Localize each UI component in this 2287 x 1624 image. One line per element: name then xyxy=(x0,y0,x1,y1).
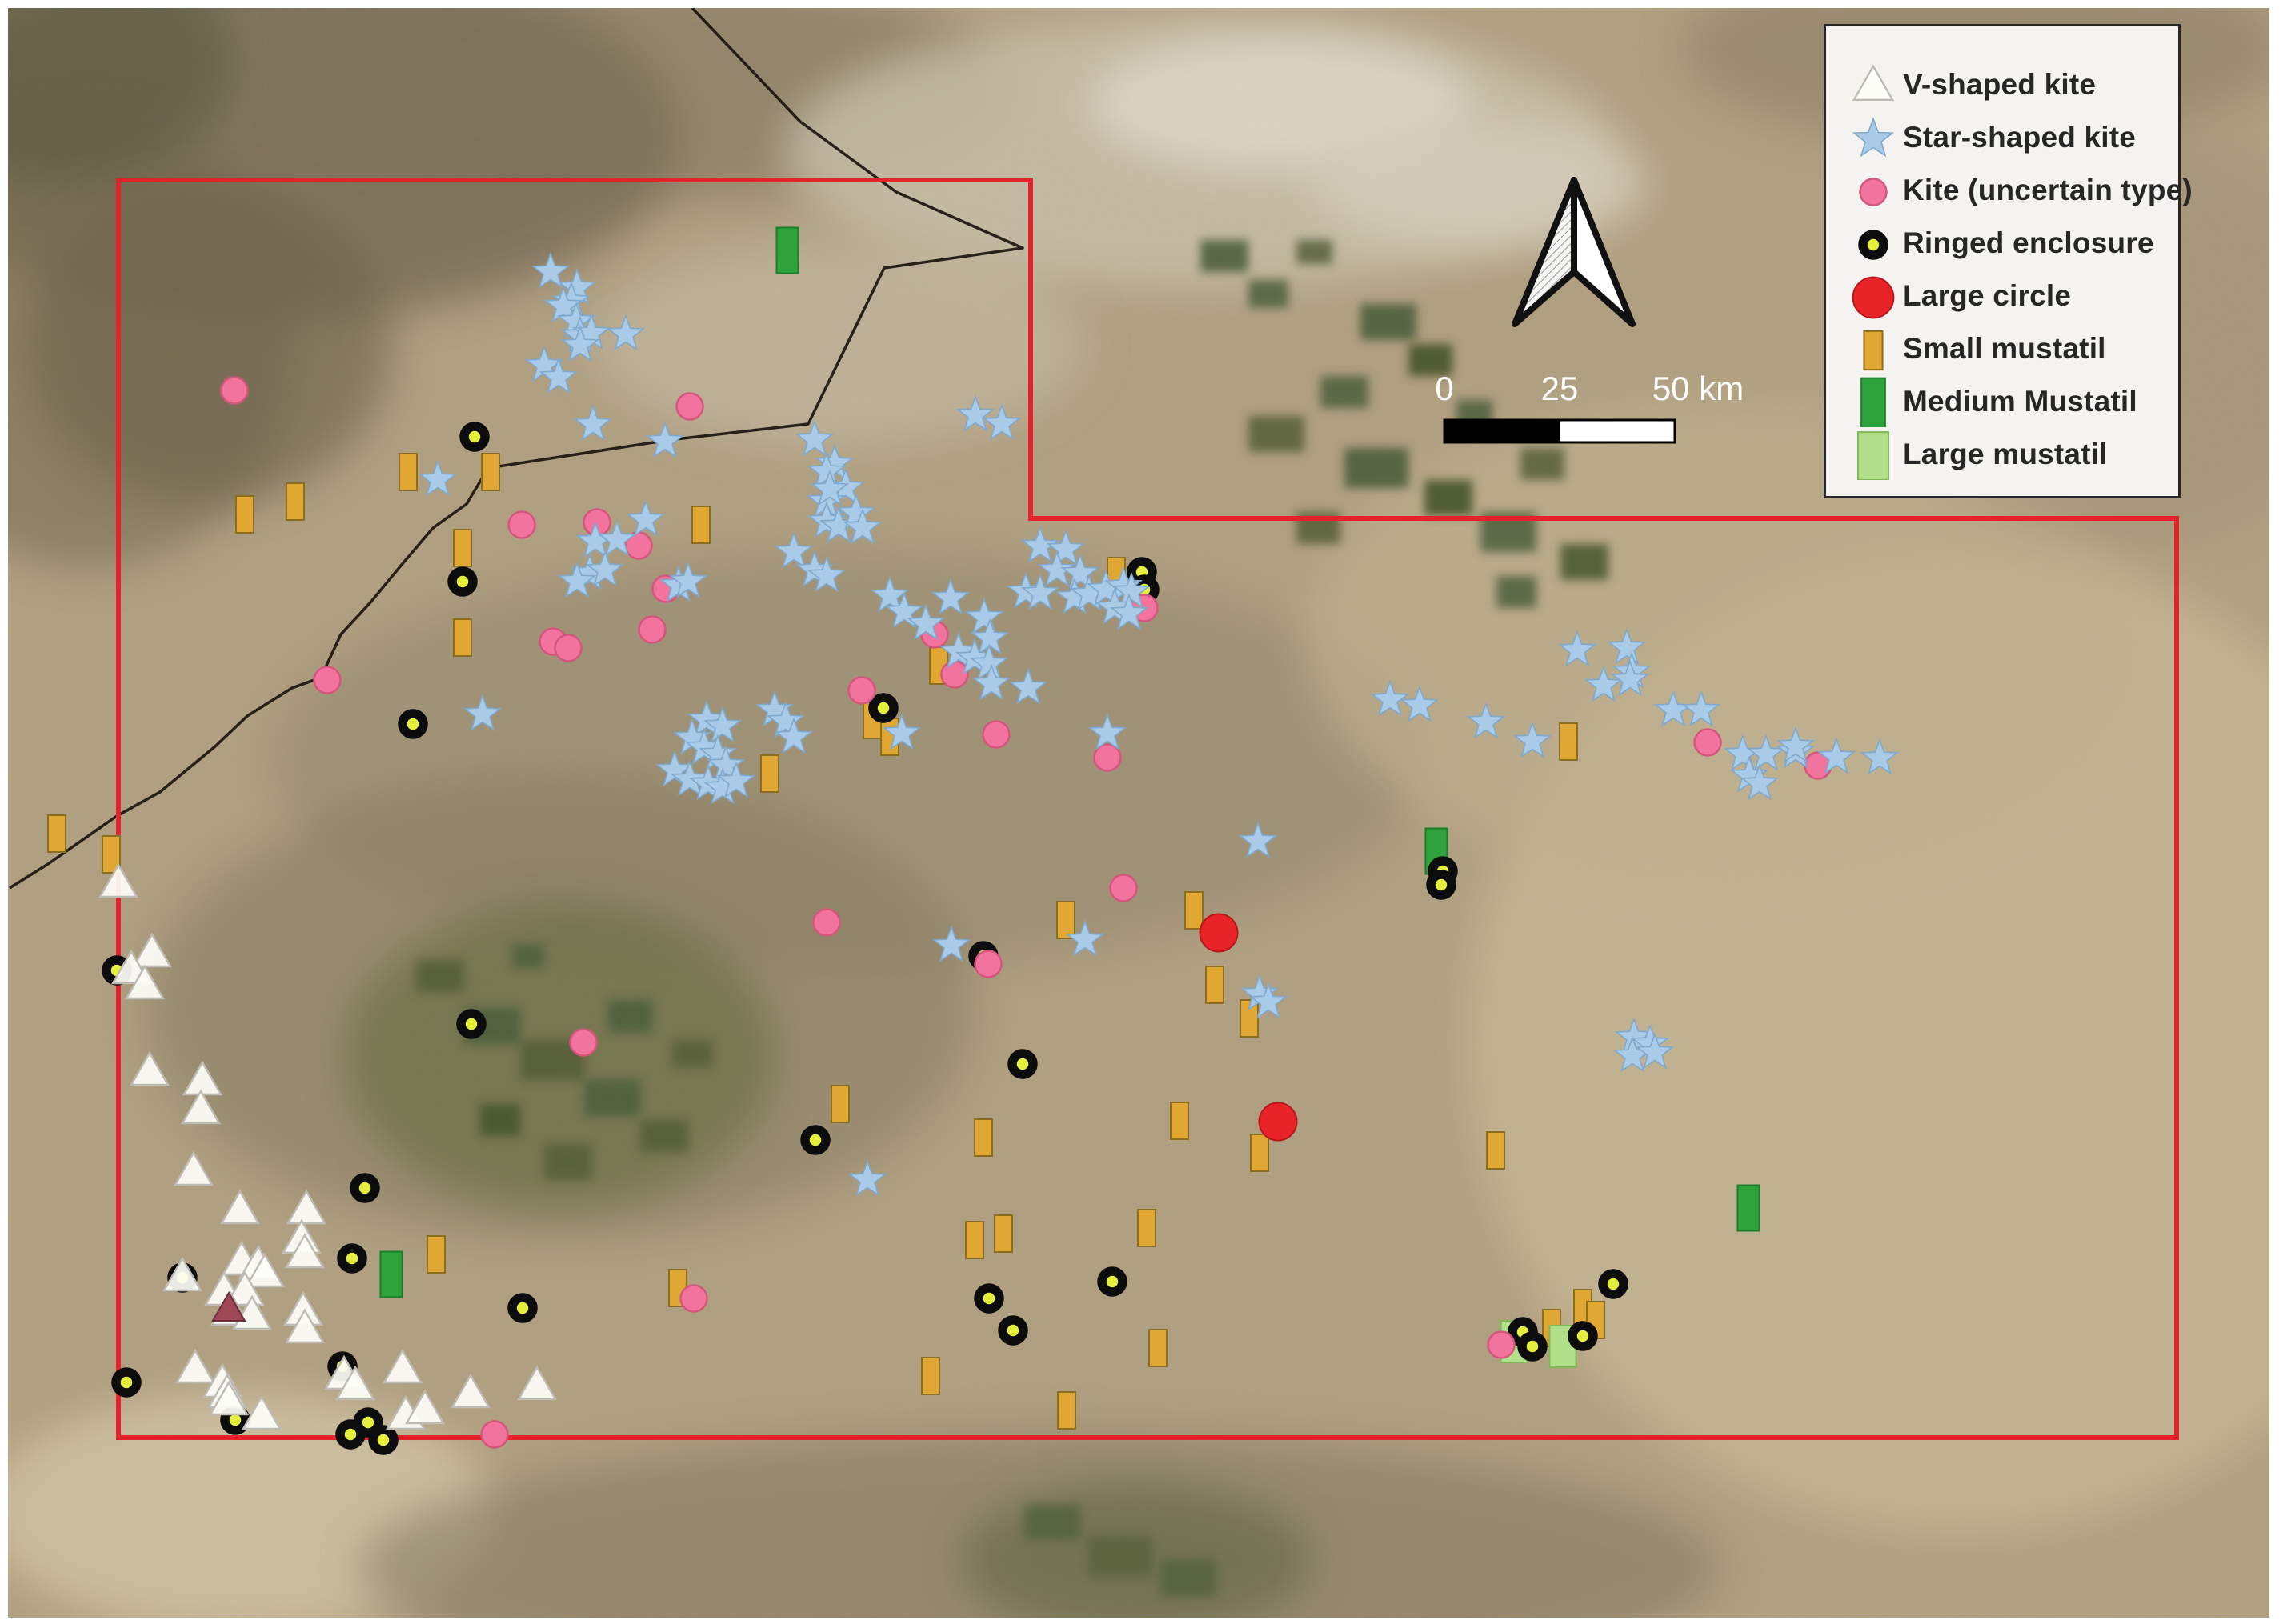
marker-kite-uncertain xyxy=(1488,1332,1515,1358)
marker-small-mustatil xyxy=(1560,723,1577,760)
marker-medium-mustatil xyxy=(777,228,799,274)
marker-ringed-enclosure xyxy=(1102,1271,1123,1292)
legend-label: Large mustatil xyxy=(1903,438,2108,471)
marker-ringed-enclosure xyxy=(512,1298,533,1318)
marker-kite-uncertain xyxy=(983,722,1010,748)
legend-symbol-large-mustatil-icon xyxy=(1844,430,1903,478)
figure-margin xyxy=(0,0,8,1624)
marker-kite-uncertain xyxy=(942,662,968,688)
marker-large-circle xyxy=(1260,1103,1297,1141)
legend-label: Medium Mustatil xyxy=(1903,385,2137,418)
marker-small-mustatil xyxy=(286,483,304,520)
figure-margin xyxy=(0,0,2287,8)
marker-large-circle xyxy=(1200,914,1238,952)
marker-kite-uncertain xyxy=(814,910,840,936)
scale-label-25: 25 xyxy=(1541,370,1579,407)
marker-kite-uncertain xyxy=(1095,745,1121,771)
scale-label-0: 0 xyxy=(1435,370,1453,407)
marker-ringed-enclosure xyxy=(1522,1336,1543,1357)
marker-small-mustatil xyxy=(399,454,417,490)
marker-kite-uncertain xyxy=(555,635,582,662)
marker-small-mustatil xyxy=(692,506,710,543)
marker-kite-uncertain xyxy=(975,951,1002,978)
marker-small-mustatil xyxy=(1171,1102,1188,1139)
marker-kite-uncertain xyxy=(1111,875,1137,902)
marker-small-mustatil xyxy=(761,755,779,792)
marker-ringed-enclosure xyxy=(403,714,423,734)
legend-label: Large circle xyxy=(1903,279,2071,313)
marker-ringed-enclosure xyxy=(1012,1054,1033,1074)
legend-symbol-ringed-enclosure-icon xyxy=(1844,219,1903,267)
marker-ringed-enclosure xyxy=(1572,1326,1593,1346)
legend-item-kite-uncertain: Kite (uncertain type) xyxy=(1826,164,2178,217)
marker-ringed-enclosure xyxy=(116,1372,137,1393)
marker-small-mustatil xyxy=(236,496,254,533)
marker-ringed-enclosure xyxy=(354,1178,375,1198)
marker-small-mustatil xyxy=(831,1086,849,1122)
marker-kite-uncertain xyxy=(571,1030,597,1056)
marker-small-mustatil xyxy=(922,1358,939,1394)
marker-ringed-enclosure xyxy=(452,571,473,592)
marker-ringed-enclosure xyxy=(1603,1274,1624,1294)
legend-label: Star-shaped kite xyxy=(1903,121,2136,154)
marker-kite-uncertain xyxy=(1695,730,1721,756)
marker-small-mustatil xyxy=(454,530,471,566)
legend-symbol-kite-uncertain-icon xyxy=(1844,166,1903,214)
marker-ringed-enclosure xyxy=(1003,1320,1023,1341)
marker-small-mustatil xyxy=(966,1222,983,1258)
legend-label: Kite (uncertain type) xyxy=(1903,174,2193,207)
legend-item-medium-mustatil: Medium Mustatil xyxy=(1826,375,2178,428)
legend-item-ringed-enclosure: Ringed enclosure xyxy=(1826,217,2178,270)
marker-kite-uncertain xyxy=(681,1286,707,1312)
marker-small-mustatil xyxy=(1057,902,1075,938)
figure-margin xyxy=(0,1618,2287,1624)
map-legend: V-shaped kiteStar-shaped kiteKite (uncer… xyxy=(1824,24,2181,498)
marker-kite-uncertain xyxy=(509,512,535,538)
legend-symbol-medium-mustatil-icon xyxy=(1844,378,1903,426)
marker-kite-uncertain xyxy=(677,394,703,420)
marker-ringed-enclosure xyxy=(979,1288,999,1309)
legend-symbol-large-circle-icon xyxy=(1844,272,1903,320)
legend-label: Small mustatil xyxy=(1903,332,2106,366)
legend-symbol-v-kite-icon xyxy=(1844,61,1903,109)
marker-ringed-enclosure xyxy=(464,426,485,447)
marker-kite-uncertain xyxy=(639,617,666,643)
marker-ringed-enclosure xyxy=(805,1130,826,1150)
marker-small-mustatil xyxy=(1138,1210,1156,1246)
legend-symbol-star-kite-icon xyxy=(1844,114,1903,162)
marker-small-mustatil xyxy=(1149,1330,1167,1366)
marker-small-mustatil xyxy=(1058,1392,1075,1429)
marker-small-mustatil xyxy=(1251,1134,1268,1171)
marker-small-mustatil xyxy=(454,619,471,656)
marker-ringed-enclosure xyxy=(342,1248,362,1269)
legend-item-large-circle: Large circle xyxy=(1826,270,2178,322)
scale-label-50km: 50 km xyxy=(1652,370,1744,407)
marker-medium-mustatil xyxy=(381,1252,403,1298)
marker-small-mustatil xyxy=(1206,966,1224,1003)
marker-ringed-enclosure xyxy=(461,1014,482,1034)
marker-small-mustatil xyxy=(1487,1132,1504,1169)
marker-kite-uncertain xyxy=(849,678,875,704)
marker-ringed-enclosure xyxy=(1431,874,1452,895)
marker-small-mustatil xyxy=(1185,892,1203,929)
marker-ringed-enclosure xyxy=(873,698,894,718)
marker-small-mustatil xyxy=(482,454,499,490)
marker-small-mustatil xyxy=(48,815,66,852)
marker-medium-mustatil xyxy=(1738,1186,1760,1231)
marker-kite-uncertain xyxy=(482,1422,508,1448)
legend-item-large-mustatil: Large mustatil xyxy=(1826,428,2178,481)
legend-symbol-small-mustatil-icon xyxy=(1844,325,1903,373)
marker-small-mustatil xyxy=(995,1215,1012,1252)
marker-ringed-enclosure xyxy=(373,1430,394,1450)
scale-bar-filled-segment xyxy=(1444,420,1560,442)
legend-item-star-kite: Star-shaped kite xyxy=(1826,111,2178,164)
legend-item-small-mustatil: Small mustatil xyxy=(1826,322,2178,375)
legend-item-v-kite: V-shaped kite xyxy=(1826,58,2178,111)
figure-margin xyxy=(2269,0,2287,1624)
marker-kite-uncertain xyxy=(222,378,248,404)
marker-small-mustatil xyxy=(975,1119,992,1156)
marker-kite-uncertain xyxy=(314,667,341,694)
marker-small-mustatil xyxy=(427,1236,445,1273)
legend-label: Ringed enclosure xyxy=(1903,226,2154,260)
map-figure: 0 25 50 km V-shaped kiteStar-shaped kite… xyxy=(0,0,2287,1624)
legend-label: V-shaped kite xyxy=(1903,68,2096,102)
